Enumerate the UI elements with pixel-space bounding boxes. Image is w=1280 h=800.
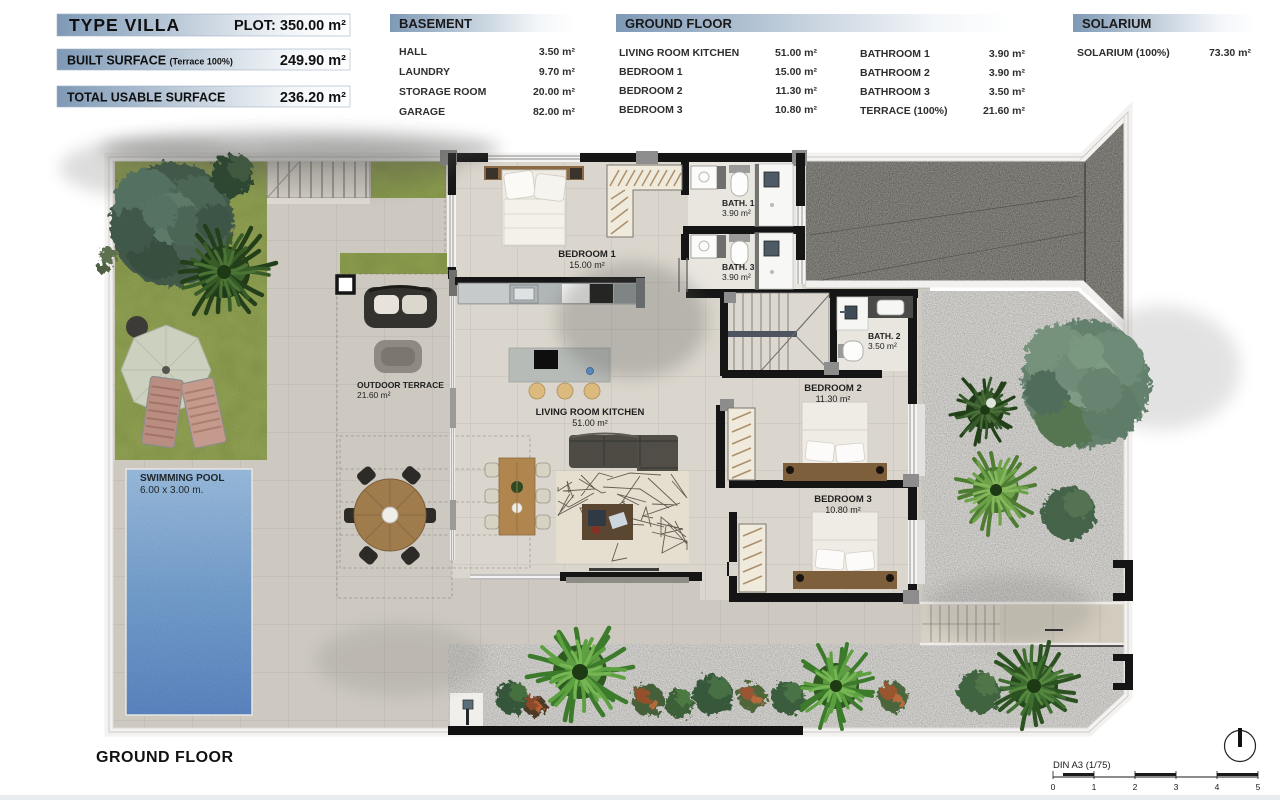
svg-text:GROUND FLOOR: GROUND FLOOR xyxy=(625,16,732,31)
svg-text:TOTAL USABLE SURFACE: TOTAL USABLE SURFACE xyxy=(67,91,225,105)
svg-text:DIN A3 (1/75): DIN A3 (1/75) xyxy=(1053,760,1111,771)
svg-text:SOLARIUM (100%): SOLARIUM (100%) xyxy=(1077,47,1170,59)
svg-text:1: 1 xyxy=(1092,782,1097,792)
svg-text:249.90 m²: 249.90 m² xyxy=(280,53,346,69)
svg-text:3.50 m²: 3.50 m² xyxy=(539,46,576,58)
svg-text:3.50 m²: 3.50 m² xyxy=(989,86,1026,98)
svg-text:9.70 m²: 9.70 m² xyxy=(539,66,576,78)
svg-text:SOLARIUM: SOLARIUM xyxy=(1082,16,1151,31)
svg-text:3.90 m²: 3.90 m² xyxy=(722,272,751,282)
svg-text:TERRACE (100%): TERRACE (100%) xyxy=(860,105,948,117)
svg-text:15.00 m²: 15.00 m² xyxy=(569,260,605,270)
svg-text:LIVING ROOM KITCHEN: LIVING ROOM KITCHEN xyxy=(536,407,645,418)
svg-text:SWIMMING POOL: SWIMMING POOL xyxy=(140,473,224,484)
svg-text:73.30 m²: 73.30 m² xyxy=(1209,47,1252,59)
svg-text:BEDROOM 1: BEDROOM 1 xyxy=(619,66,683,78)
svg-text:0: 0 xyxy=(1051,782,1056,792)
svg-text:HALL: HALL xyxy=(399,46,428,58)
svg-text:BATHROOM 3: BATHROOM 3 xyxy=(860,86,930,98)
svg-text:BEDROOM 1: BEDROOM 1 xyxy=(558,249,616,260)
svg-text:BATHROOM 1: BATHROOM 1 xyxy=(860,48,930,60)
svg-text:OUTDOOR TERRACE: OUTDOOR TERRACE xyxy=(357,380,444,390)
svg-text:BEDROOM 2: BEDROOM 2 xyxy=(619,85,683,97)
svg-text:82.00 m²: 82.00 m² xyxy=(533,106,576,118)
svg-text:LIVING ROOM KITCHEN: LIVING ROOM KITCHEN xyxy=(619,47,739,59)
svg-text:3: 3 xyxy=(1174,782,1179,792)
svg-text:3.50 m²: 3.50 m² xyxy=(868,341,897,351)
svg-text:BEDROOM 3: BEDROOM 3 xyxy=(619,104,683,116)
svg-text:STORAGE ROOM: STORAGE ROOM xyxy=(399,86,487,98)
svg-text:15.00 m²: 15.00 m² xyxy=(775,66,818,78)
svg-text:5: 5 xyxy=(1256,782,1261,792)
svg-text:11.30 m²: 11.30 m² xyxy=(816,394,851,404)
svg-text:6.00 x 3.00 m.: 6.00 x 3.00 m. xyxy=(140,485,203,496)
svg-text:BEDROOM 2: BEDROOM 2 xyxy=(804,383,862,394)
svg-text:BATH. 3: BATH. 3 xyxy=(722,262,755,272)
svg-text:236.20 m²: 236.20 m² xyxy=(280,90,346,106)
svg-text:PLOT: 350.00 m²: PLOT: 350.00 m² xyxy=(234,18,346,34)
svg-text:21.60 m²: 21.60 m² xyxy=(983,105,1026,117)
svg-text:10.80 m²: 10.80 m² xyxy=(825,505,861,515)
svg-text:TYPE VILLA: TYPE VILLA xyxy=(69,15,180,35)
svg-text:3.90 m²: 3.90 m² xyxy=(989,48,1026,60)
svg-text:BEDROOM 3: BEDROOM 3 xyxy=(814,494,872,505)
svg-text:11.30 m²: 11.30 m² xyxy=(776,85,818,97)
svg-text:51.00 m²: 51.00 m² xyxy=(775,47,818,59)
svg-text:3.90 m²: 3.90 m² xyxy=(989,67,1026,79)
svg-text:BASEMENT: BASEMENT xyxy=(399,16,472,31)
svg-text:4: 4 xyxy=(1215,782,1220,792)
svg-text:BATH. 1: BATH. 1 xyxy=(722,198,755,208)
svg-text:BATHROOM 2: BATHROOM 2 xyxy=(860,67,930,79)
svg-text:BUILT SURFACE (Terrace 100%): BUILT SURFACE (Terrace 100%) xyxy=(67,54,233,68)
svg-text:21.60 m²: 21.60 m² xyxy=(357,390,391,400)
svg-text:3.90 m²: 3.90 m² xyxy=(722,208,751,218)
svg-text:20.00 m²: 20.00 m² xyxy=(533,86,576,98)
svg-text:51.00 m²: 51.00 m² xyxy=(572,418,608,428)
svg-text:LAUNDRY: LAUNDRY xyxy=(399,66,450,78)
svg-text:GROUND FLOOR: GROUND FLOOR xyxy=(96,749,234,766)
svg-text:BATH. 2: BATH. 2 xyxy=(868,331,901,341)
svg-text:10.80 m²: 10.80 m² xyxy=(775,104,818,116)
svg-text:GARAGE: GARAGE xyxy=(399,106,445,118)
svg-text:2: 2 xyxy=(1133,782,1138,792)
